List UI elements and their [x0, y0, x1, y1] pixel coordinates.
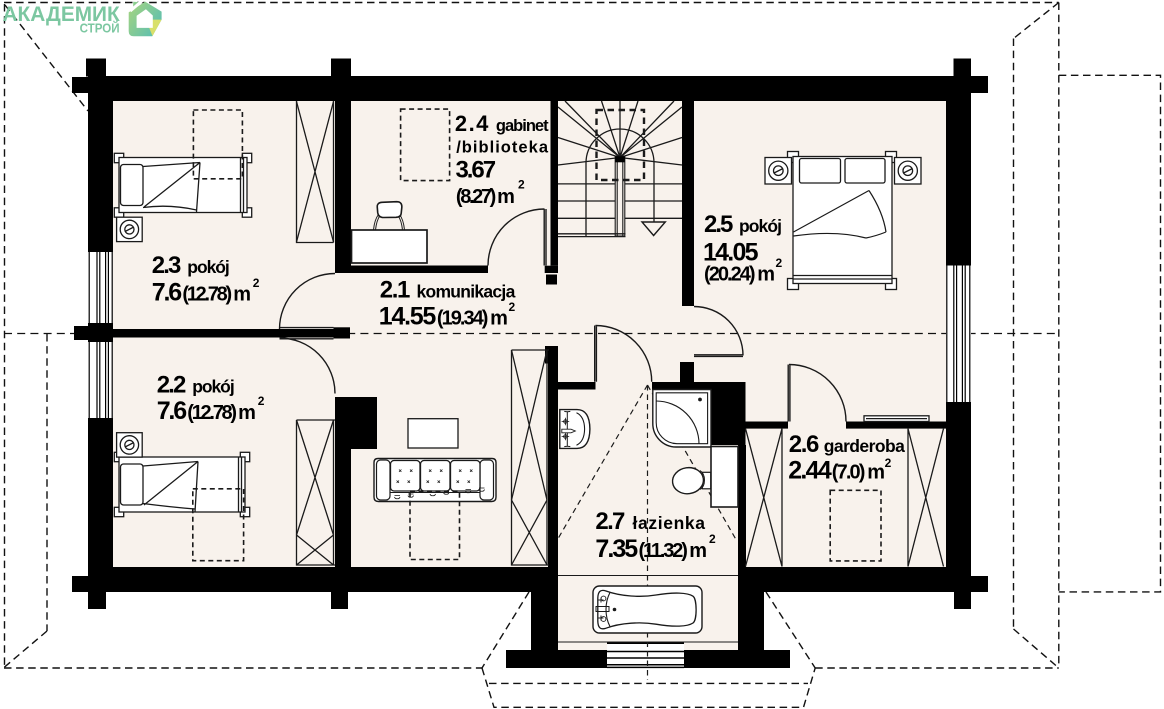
svg-text:(20.24) m: (20.24) m — [704, 264, 775, 286]
svg-text:7.6: 7.6 — [157, 397, 187, 425]
svg-text:2.1: 2.1 — [380, 277, 411, 304]
svg-text:(7.0) m: (7.0) m — [832, 461, 885, 483]
svg-text:2.3: 2.3 — [152, 252, 182, 279]
svg-text:2: 2 — [509, 300, 516, 314]
svg-text:łazienka: łazienka — [633, 513, 706, 533]
svg-text:14.55: 14.55 — [379, 303, 437, 331]
svg-text:7.6: 7.6 — [152, 279, 182, 307]
svg-text:gabinet: gabinet — [496, 117, 549, 135]
svg-text:2: 2 — [776, 256, 783, 270]
svg-text:(12.78) m: (12.78) m — [187, 402, 256, 424]
svg-text:2: 2 — [518, 178, 525, 192]
svg-text:(19.34) m: (19.34) m — [437, 308, 508, 330]
svg-text:2.44: 2.44 — [788, 456, 832, 484]
svg-text:2.2: 2.2 — [157, 372, 187, 399]
svg-text:pokój: pokój — [192, 377, 235, 397]
svg-text:pokój: pokój — [187, 257, 230, 277]
svg-text:СТРОЙ: СТРОЙ — [80, 21, 120, 36]
svg-text:2: 2 — [885, 456, 892, 470]
svg-text:2.7: 2.7 — [595, 508, 625, 535]
svg-text:2: 2 — [709, 532, 716, 546]
svg-text:2.4: 2.4 — [455, 111, 489, 136]
svg-text:komunikacja: komunikacja — [417, 282, 516, 302]
svg-text:garderoba: garderoba — [824, 436, 905, 456]
svg-text:(11.32) m: (11.32) m — [639, 540, 708, 562]
svg-text:7.35: 7.35 — [595, 535, 638, 563]
svg-text:2: 2 — [253, 276, 260, 290]
svg-text:pokój: pokój — [739, 216, 782, 236]
svg-text:2.6: 2.6 — [789, 431, 820, 458]
svg-text:2: 2 — [258, 394, 265, 408]
svg-text:2.5: 2.5 — [704, 211, 733, 238]
svg-text:(12.78) m: (12.78) m — [182, 284, 251, 306]
svg-text:/biblioteka: /biblioteka — [456, 138, 549, 156]
svg-text:(8.27) m: (8.27) m — [456, 186, 515, 208]
svg-text:14.05: 14.05 — [703, 239, 759, 267]
svg-text:3.67: 3.67 — [456, 156, 497, 183]
